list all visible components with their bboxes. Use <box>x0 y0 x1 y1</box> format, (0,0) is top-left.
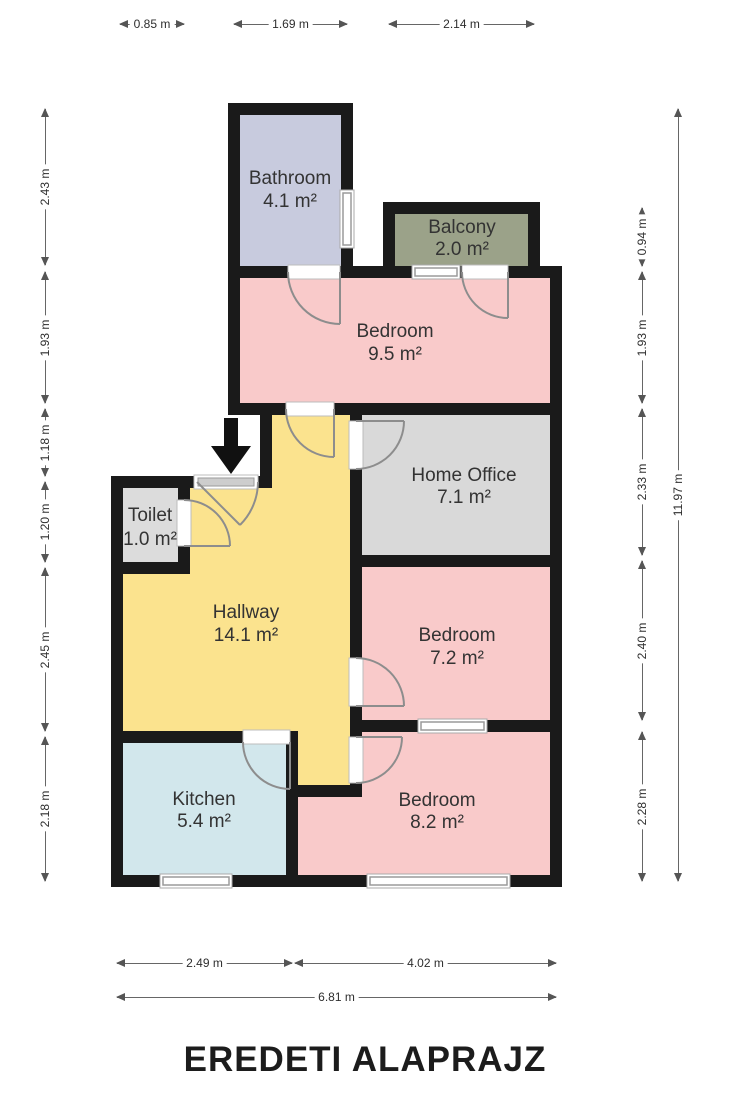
dim-top-2-label: 2.14 m <box>439 17 484 31</box>
floor-plan-page: Bathroom 4.1 m² Balcony 2.0 m² Bedroom 9… <box>0 0 730 1116</box>
dim-left-1-label: 1.93 m <box>37 315 53 360</box>
entrance-arrow-icon <box>211 418 251 474</box>
dim-right-1: 1.93 m <box>635 272 649 403</box>
dim-right-total: 11.97 m <box>671 109 685 881</box>
door-gap-bedroom-2 <box>349 658 363 706</box>
dim-left-5: 2.18 m <box>38 737 52 881</box>
room-area-home-office: 7.1 m² <box>437 487 491 508</box>
dim-left-3-label: 1.20 m <box>37 500 53 545</box>
dim-bottom-0-label: 2.49 m <box>182 956 227 970</box>
window-bathroom <box>340 190 354 248</box>
dim-left-4-label: 2.45 m <box>37 627 53 672</box>
window-balcony <box>412 265 460 279</box>
room-area-balcony: 2.0 m² <box>435 239 489 260</box>
door-gap-balcony <box>462 265 508 279</box>
dim-left-1: 1.93 m <box>38 272 52 403</box>
door-gap-home-office <box>349 421 363 469</box>
dim-right-4: 2.28 m <box>635 732 649 881</box>
dim-right-4-label: 2.28 m <box>634 784 650 829</box>
floor-plan: Bathroom 4.1 m² Balcony 2.0 m² Bedroom 9… <box>0 0 730 1116</box>
dim-right-3: 2.40 m <box>635 561 649 720</box>
room-label-bedroom-2: Bedroom <box>418 625 495 646</box>
dim-top-1-label: 1.69 m <box>268 17 313 31</box>
dim-right-1-label: 1.93 m <box>634 315 650 360</box>
dim-left-3: 1.20 m <box>38 482 52 562</box>
dim-right-0: 0.94 m <box>635 208 649 266</box>
room-area-toilet: 1.0 m² <box>123 529 177 550</box>
room-label-hallway: Hallway <box>213 602 280 623</box>
dim-bottom-total: 6.81 m <box>117 990 556 1004</box>
room-area-bedroom-1: 9.5 m² <box>368 344 422 365</box>
dim-bottom-1: 4.02 m <box>295 956 556 970</box>
room-label-kitchen: Kitchen <box>172 789 235 810</box>
dim-left-2-label: 1.18 m <box>37 420 53 465</box>
dim-right-0-label: 0.94 m <box>634 215 650 260</box>
dim-right-2-label: 2.33 m <box>634 460 650 505</box>
room-label-balcony: Balcony <box>428 217 496 238</box>
dim-right-2: 2.33 m <box>635 409 649 555</box>
room-area-bedroom-3: 8.2 m² <box>410 812 464 833</box>
room-area-bathroom: 4.1 m² <box>263 191 317 212</box>
entrance-door-slab <box>198 478 254 486</box>
dim-top-2: 2.14 m <box>389 17 534 31</box>
window-bedroom-3 <box>367 874 510 888</box>
door-gap-bathroom <box>288 265 340 279</box>
dim-bottom-1-label: 4.02 m <box>403 956 448 970</box>
room-label-bedroom-1: Bedroom <box>356 321 433 342</box>
room-area-kitchen: 5.4 m² <box>177 811 231 832</box>
door-gap-kitchen <box>243 730 290 744</box>
dim-left-2: 1.18 m <box>38 409 52 476</box>
window-kitchen <box>160 874 232 888</box>
dim-right-3-label: 2.40 m <box>634 618 650 663</box>
room-label-home-office: Home Office <box>411 465 516 486</box>
dim-left-5-label: 2.18 m <box>37 787 53 832</box>
dim-left-0-label: 2.43 m <box>37 165 53 210</box>
room-label-bedroom-3: Bedroom <box>398 790 475 811</box>
page-title: EREDETI ALAPRAJZ <box>0 1040 730 1080</box>
room-label-bathroom: Bathroom <box>249 168 331 189</box>
dim-bottom-0: 2.49 m <box>117 956 292 970</box>
dim-right-total-label: 11.97 m <box>670 470 686 520</box>
dim-top-1: 1.69 m <box>234 17 347 31</box>
door-gap-bedroom-1 <box>286 402 334 416</box>
dim-bottom-total-label: 6.81 m <box>314 990 359 1004</box>
door-gap-bedroom-3 <box>349 737 363 783</box>
room-area-hallway: 14.1 m² <box>214 625 278 646</box>
door-gap-toilet <box>177 500 191 546</box>
dim-left-0: 2.43 m <box>38 109 52 265</box>
room-label-toilet: Toilet <box>128 505 173 526</box>
dim-top-0-label: 0.85 m <box>130 17 175 31</box>
window-bedrooms-partition <box>418 719 487 733</box>
dim-left-4: 2.45 m <box>38 568 52 731</box>
room-area-bedroom-2: 7.2 m² <box>430 648 484 669</box>
dim-top-0: 0.85 m <box>120 17 184 31</box>
